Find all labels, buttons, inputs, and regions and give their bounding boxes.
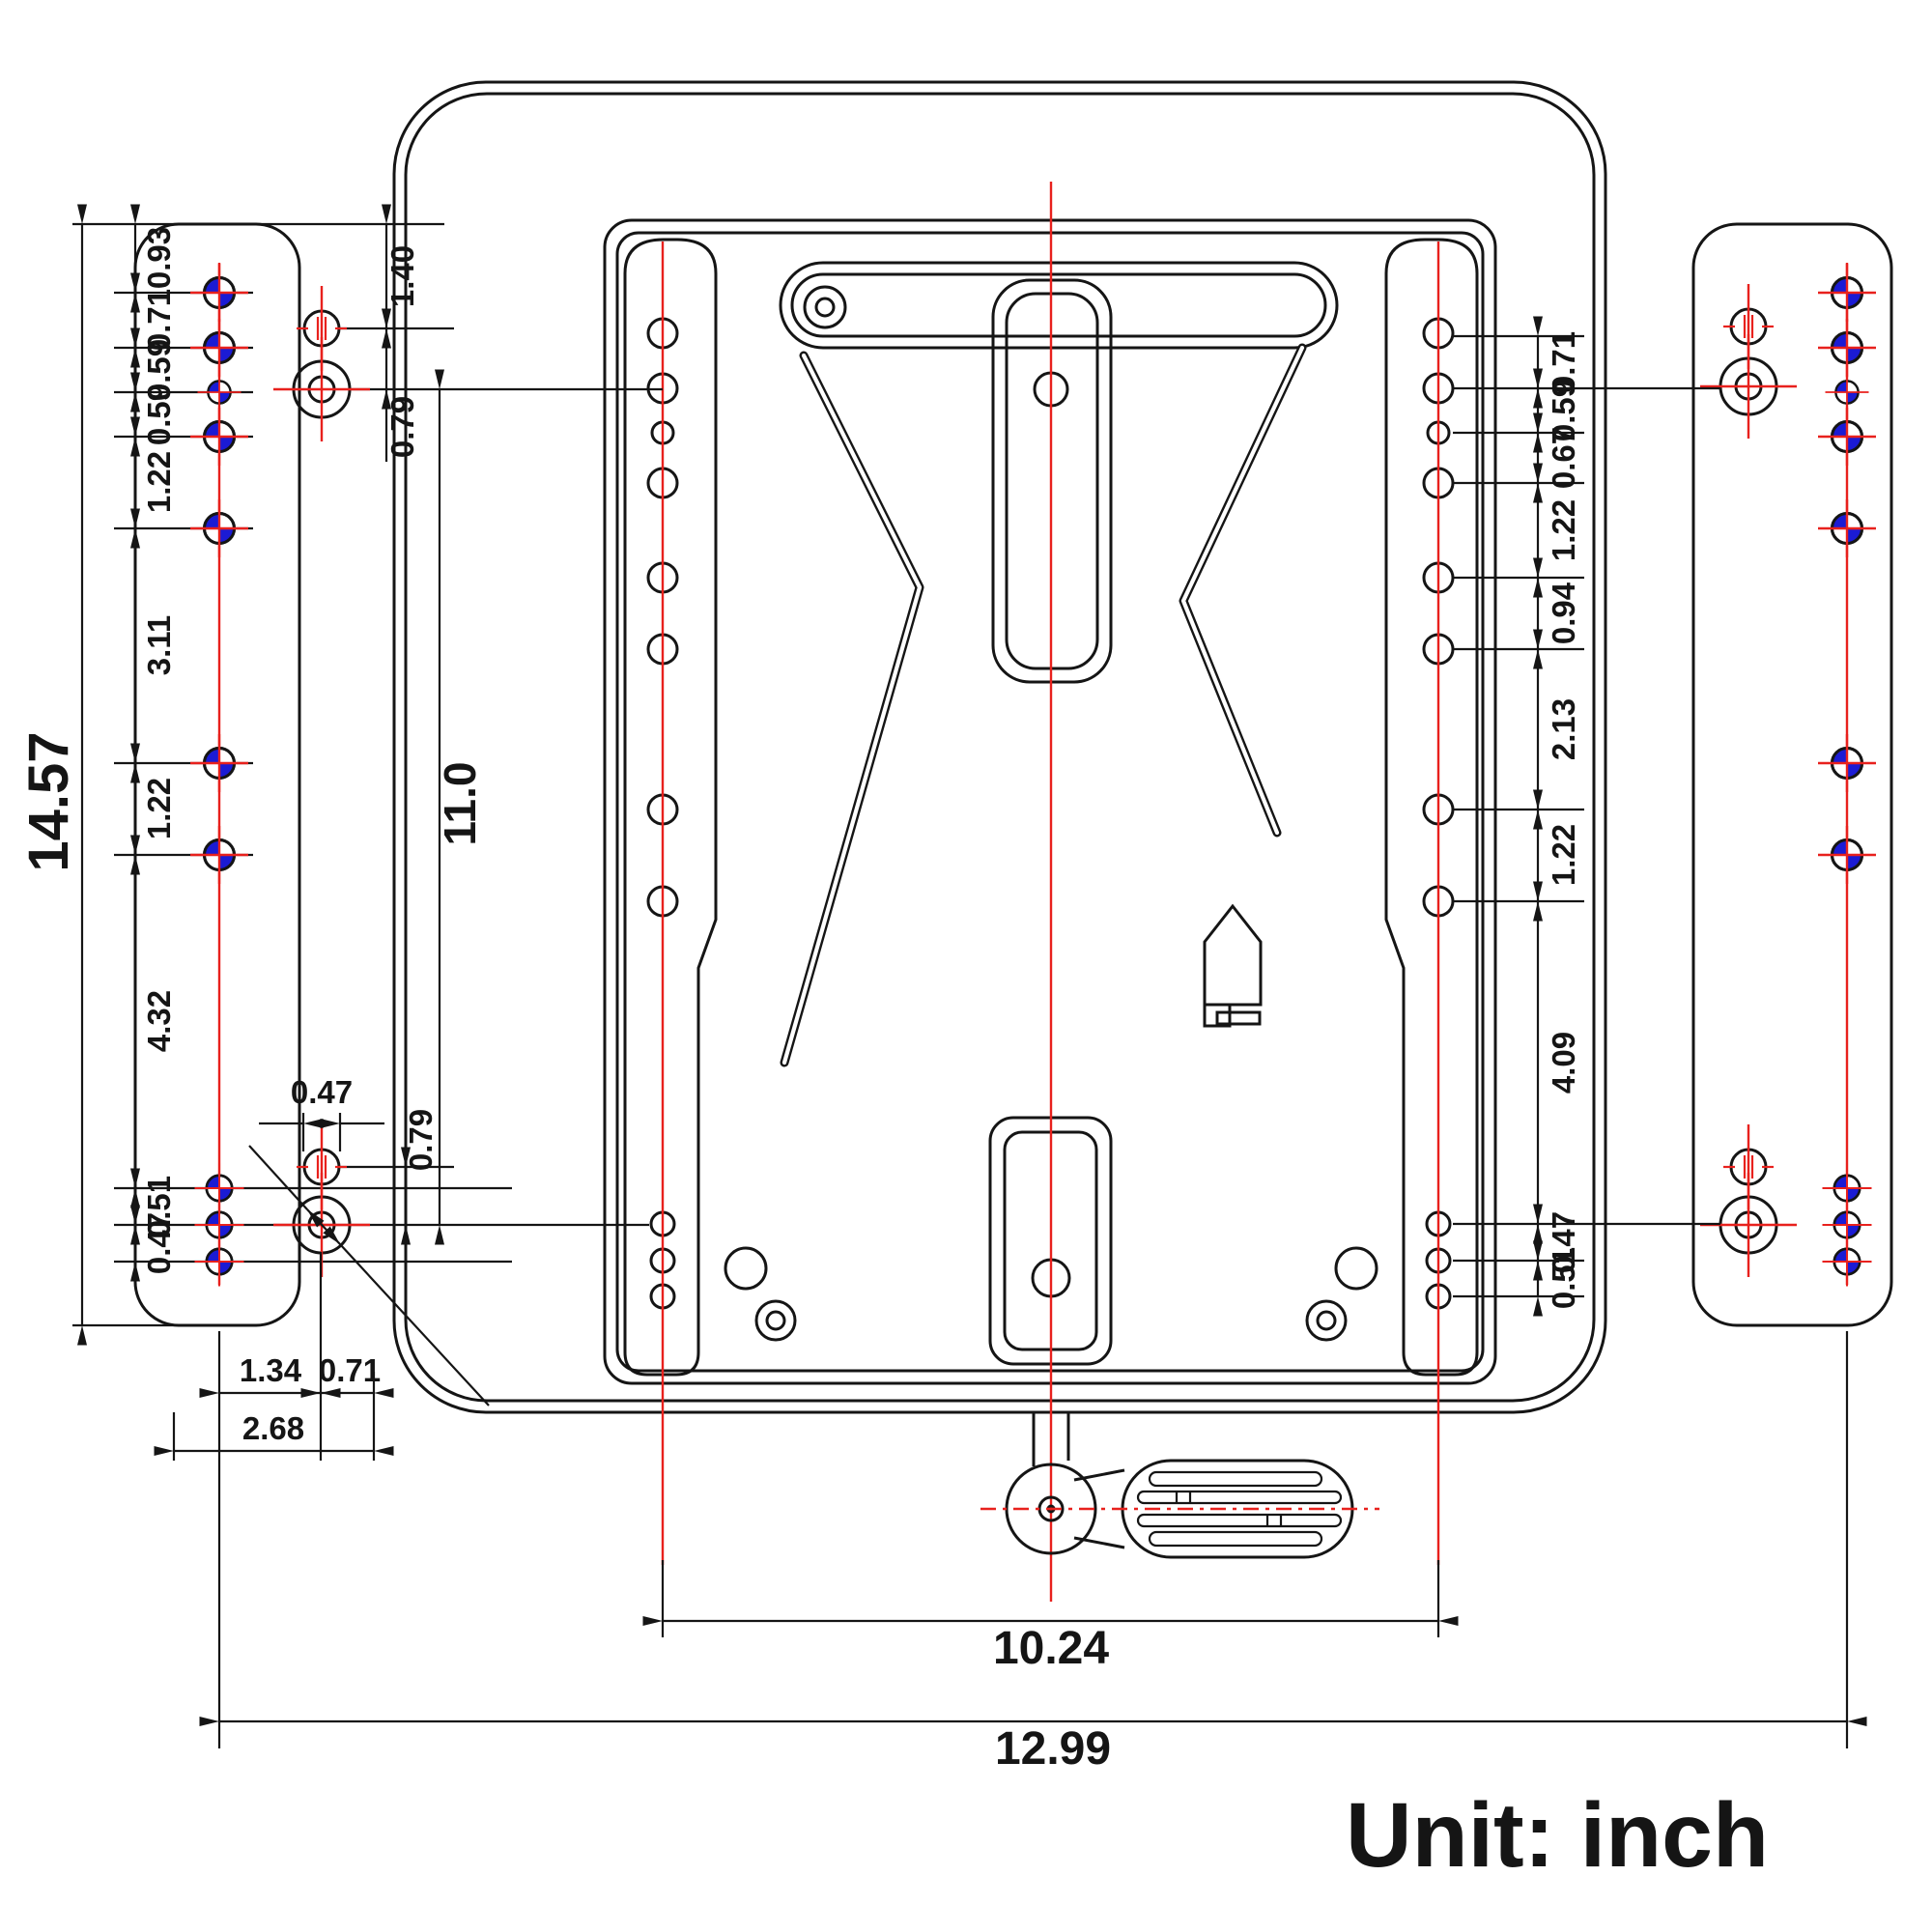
datum-target-icon <box>195 1237 244 1287</box>
dimension-inner-height: 11.0 <box>435 389 485 1225</box>
interior-double-hole-part <box>767 1312 784 1329</box>
dim-label: 1.22 <box>1546 499 1581 561</box>
datum-target-icon <box>1823 1237 1872 1287</box>
dim-label: 0.71 <box>319 1352 381 1388</box>
datum-target-icon <box>198 371 241 414</box>
interior-double-hole <box>1307 1301 1346 1340</box>
dim-label: 2.13 <box>1546 698 1581 760</box>
base-plate-outline <box>394 82 1605 1412</box>
dim-label: 0.93 <box>141 227 177 289</box>
left-slide-strip <box>625 240 716 1375</box>
interior-double-hole <box>756 1301 795 1340</box>
right-slide-strip <box>1386 240 1477 1375</box>
datum-target-icon <box>1818 408 1876 466</box>
dim-label: 1.22 <box>141 451 177 513</box>
dim-label: 0.79 <box>384 396 420 458</box>
dim-label: 12.99 <box>995 1723 1111 1775</box>
dim-label: 0.79 <box>403 1109 439 1171</box>
top-pivot-arm <box>781 263 1337 348</box>
datum-target-icon <box>1818 499 1876 557</box>
base-plate-outline-inner <box>406 94 1594 1401</box>
engineering-drawing: 0.93 0.71 0.59 0.59 1.22 3.11 1.22 4.32 … <box>0 0 1932 1932</box>
dim-label: 0.59 <box>141 384 177 445</box>
dim-label: 0.94 <box>1546 582 1581 644</box>
dim-label: 0.47 <box>291 1074 353 1110</box>
top-pivot-arm-part <box>792 274 1325 336</box>
datum-target-icon <box>190 826 248 884</box>
datum-target-icon <box>190 734 248 792</box>
dim-label: 0.67 <box>1546 427 1581 489</box>
dim-label: 0.51 <box>1546 1247 1581 1309</box>
dim-label: 3.11 <box>141 615 177 675</box>
lever-grip-slots-part <box>1138 1492 1341 1503</box>
datum-target-icon <box>190 499 248 557</box>
interior-double-hole-part <box>1318 1312 1335 1329</box>
seat-base-plate <box>394 82 1605 1602</box>
arm-pivot-hole <box>805 287 845 327</box>
latch-block-part <box>1205 906 1261 1005</box>
lever-grip-slots-part <box>1150 1532 1321 1546</box>
dim-label: 14.57 <box>17 731 80 871</box>
dim-label: 2.68 <box>242 1410 304 1446</box>
spring-wires-part <box>1183 348 1302 833</box>
dim-label: 0.47 <box>141 1212 177 1274</box>
dimension-upper-left: 1.40 0.79 <box>384 224 420 462</box>
interior-hole <box>1336 1248 1377 1289</box>
dim-label: 11.0 <box>435 762 485 846</box>
dim-label: 1.40 <box>384 245 420 307</box>
dim-label: 4.09 <box>1546 1032 1581 1094</box>
dim-label: 4.32 <box>141 990 177 1052</box>
right-mount-plate <box>1693 224 1891 1325</box>
dim-label: 1.22 <box>141 778 177 839</box>
spring-wires <box>784 348 1302 1063</box>
dim-label: 1.34 <box>240 1352 302 1388</box>
pilot-double-hole-icon <box>1700 334 1797 439</box>
interior-double-hole-part <box>756 1301 795 1340</box>
interior-double-hole-part <box>1307 1301 1346 1340</box>
datum-target-icon <box>1818 264 1876 322</box>
right-plate-outline <box>1693 224 1891 1325</box>
datum-target-icon <box>1818 319 1876 377</box>
dim-label: 1.22 <box>1546 824 1581 886</box>
interior-hole <box>725 1248 766 1289</box>
spring-wires-part <box>1183 348 1302 833</box>
spring-wires-part <box>784 355 920 1063</box>
lever-grip-slots-part <box>1138 1515 1341 1526</box>
right-pilot-holes <box>1700 284 1797 1277</box>
dimension-right-chain: 0.71 0.59 0.67 1.22 0.94 2.13 1.22 4.09 … <box>1453 331 1720 1309</box>
pilot-double-hole-icon <box>273 337 370 441</box>
dim-label: 10.24 <box>993 1623 1109 1674</box>
latch-block <box>1205 906 1261 1026</box>
dimension-overall-height: 14.57 <box>17 224 82 1325</box>
unit-note: Unit: inch <box>1346 1784 1769 1887</box>
lever-grip-slots-part <box>1150 1472 1321 1486</box>
datum-target-icon <box>1818 734 1876 792</box>
datum-target-icon <box>190 408 248 466</box>
datum-target-icon <box>190 264 248 322</box>
latch-block-part <box>1217 1012 1260 1024</box>
release-lever <box>980 1412 1379 1557</box>
datum-target-icon <box>1818 826 1876 884</box>
datum-target-icon <box>1826 371 1869 414</box>
datum-target-icon <box>190 319 248 377</box>
arm-pivot-hole-inner <box>816 298 834 316</box>
drawing-svg: 0.93 0.71 0.59 0.59 1.22 3.11 1.22 4.32 … <box>0 0 1932 1932</box>
